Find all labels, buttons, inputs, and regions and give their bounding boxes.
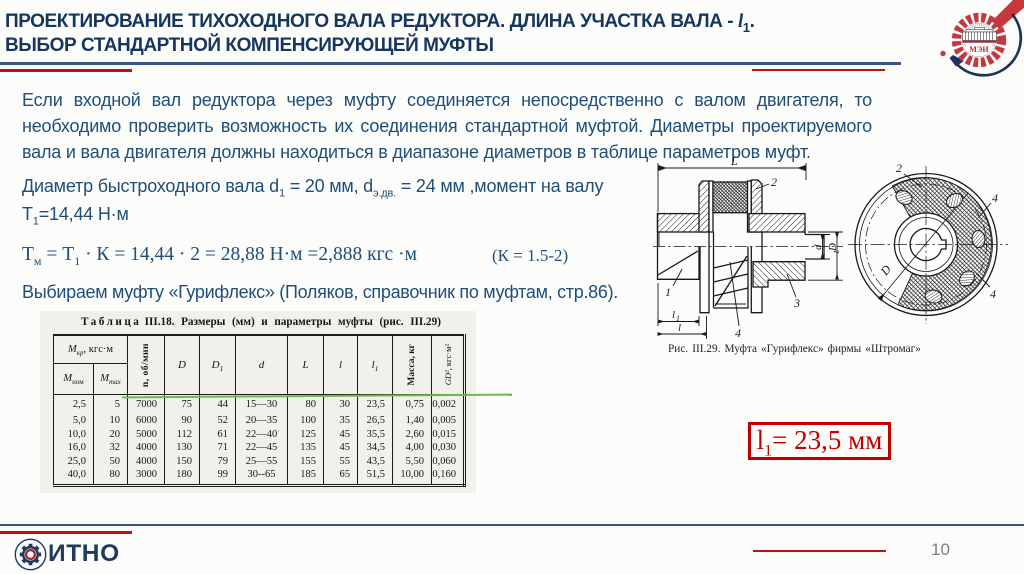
svg-text:3: 3 bbox=[793, 296, 800, 310]
svg-text:1: 1 bbox=[832, 250, 841, 254]
svg-text:1: 1 bbox=[665, 285, 671, 299]
svg-text:4: 4 bbox=[990, 287, 996, 301]
svg-text:L: L bbox=[730, 156, 738, 168]
svg-text:d: d bbox=[812, 244, 824, 250]
svg-text:D: D bbox=[877, 262, 894, 279]
svg-text:2: 2 bbox=[896, 161, 902, 175]
svg-text:l: l bbox=[672, 309, 675, 321]
svg-text:2: 2 bbox=[771, 175, 777, 189]
svg-text:МЭИ: МЭИ bbox=[969, 45, 989, 54]
svg-text:l: l bbox=[678, 322, 681, 334]
svg-text:4: 4 bbox=[992, 191, 998, 205]
svg-text:4: 4 bbox=[735, 326, 741, 340]
